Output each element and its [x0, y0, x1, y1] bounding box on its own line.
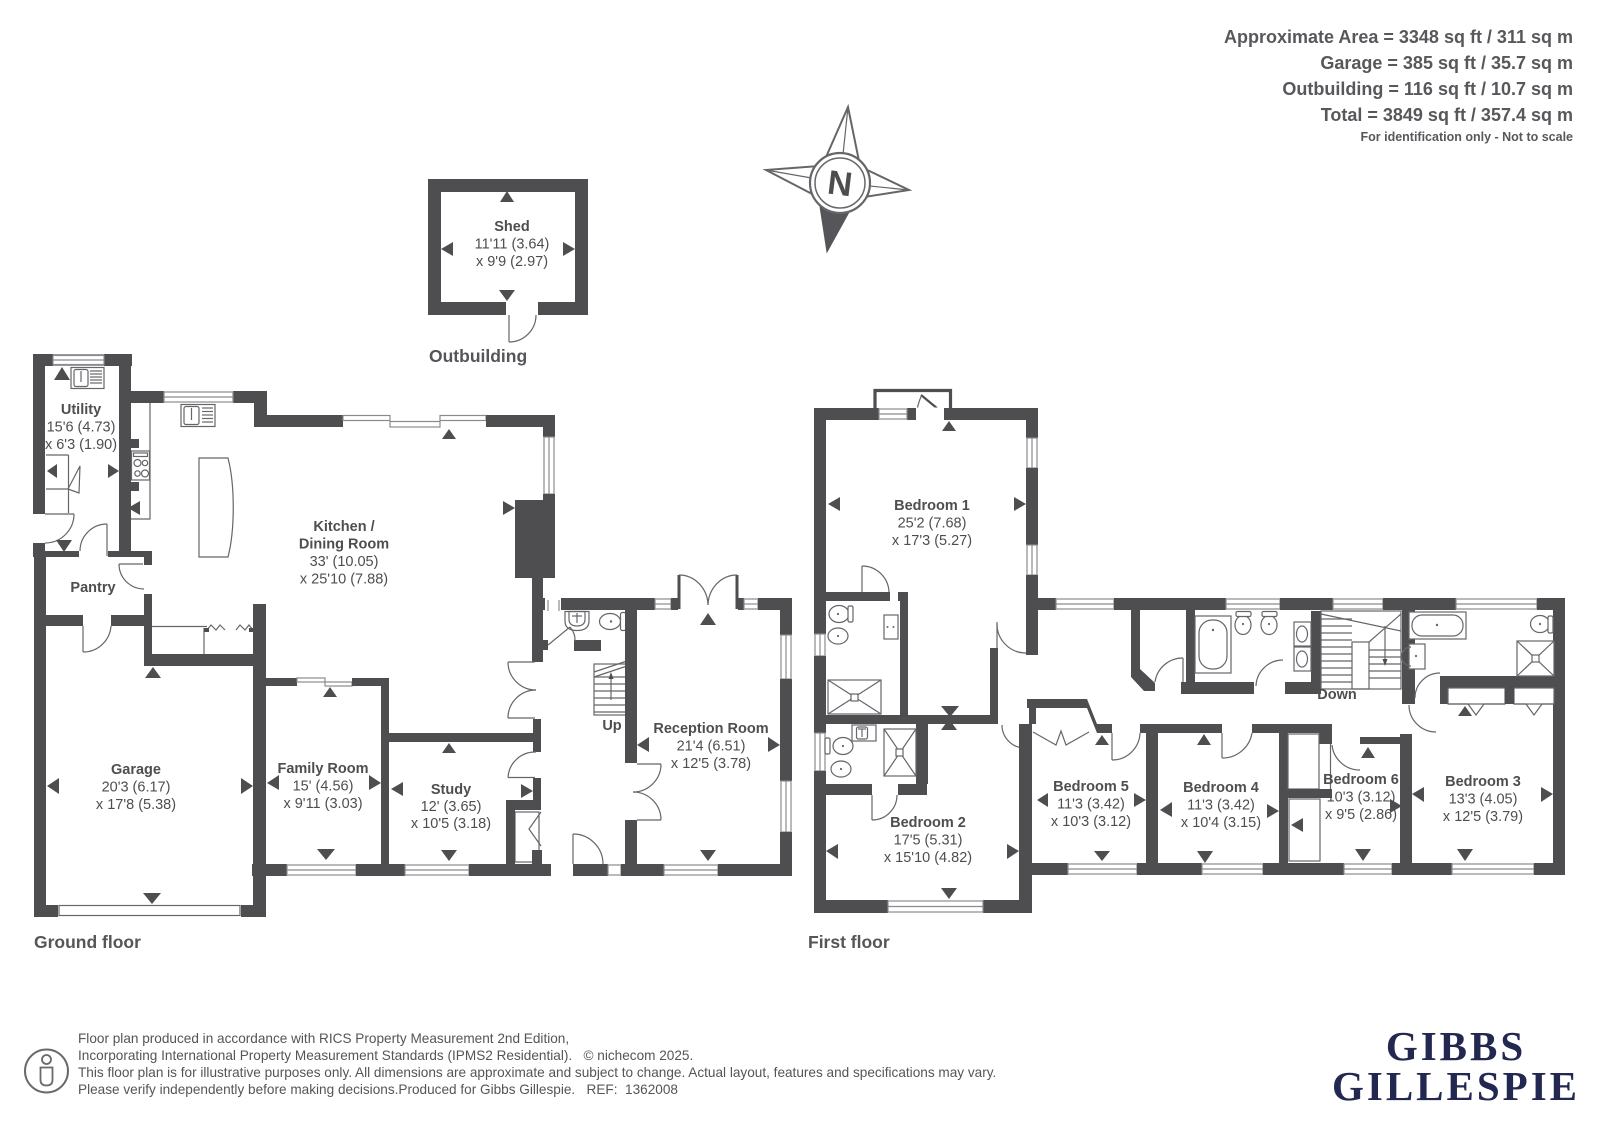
svg-text:x 15'10 (4.82): x 15'10 (4.82) — [884, 850, 972, 866]
svg-text:For identification only - Not: For identification only - Not to scale — [1360, 130, 1573, 144]
svg-text:GILLESPIE: GILLESPIE — [1332, 1063, 1580, 1109]
svg-text:Incorporating International Pr: Incorporating International Property Mea… — [78, 1048, 693, 1063]
svg-text:x 9'9 (2.97): x 9'9 (2.97) — [476, 254, 548, 270]
svg-text:x 10'3 (3.12): x 10'3 (3.12) — [1051, 814, 1131, 830]
svg-text:11'11 (3.64): 11'11 (3.64) — [475, 237, 550, 253]
svg-text:Outbuilding: Outbuilding — [429, 346, 527, 366]
svg-text:Shed: Shed — [494, 219, 529, 235]
svg-text:Approximate Area = 3348 sq ft: Approximate Area = 3348 sq ft / 311 sq m — [1224, 27, 1573, 47]
svg-text:Down: Down — [1317, 687, 1356, 703]
svg-text:Study: Study — [431, 782, 471, 798]
svg-text:Ground floor: Ground floor — [34, 932, 141, 952]
svg-text:21'4 (6.51): 21'4 (6.51) — [677, 739, 746, 755]
svg-text:Total = 3849 sq ft / 357.4 sq: Total = 3849 sq ft / 357.4 sq m — [1321, 105, 1573, 125]
svg-text:15'6 (4.73): 15'6 (4.73) — [47, 420, 116, 436]
svg-text:Garage: Garage — [111, 762, 161, 778]
svg-text:25'2 (7.68): 25'2 (7.68) — [898, 516, 967, 532]
svg-text:Kitchen /: Kitchen / — [313, 519, 374, 535]
svg-text:33' (10.05): 33' (10.05) — [310, 554, 379, 570]
svg-text:x 12'5 (3.78): x 12'5 (3.78) — [671, 756, 751, 772]
svg-text:11'3 (3.42): 11'3 (3.42) — [1187, 798, 1255, 814]
svg-text:Bedroom 5: Bedroom 5 — [1053, 779, 1129, 795]
svg-text:13'3 (4.05): 13'3 (4.05) — [1449, 792, 1518, 808]
svg-text:x 17'3 (5.27): x 17'3 (5.27) — [892, 533, 972, 549]
svg-text:10'3 (3.12): 10'3 (3.12) — [1327, 790, 1396, 806]
svg-text:x 10'4 (3.15): x 10'4 (3.15) — [1181, 815, 1261, 831]
svg-text:N: N — [825, 164, 854, 205]
svg-text:Bedroom 6: Bedroom 6 — [1323, 772, 1399, 788]
svg-text:Dining Room: Dining Room — [299, 537, 389, 553]
svg-text:15' (4.56): 15' (4.56) — [293, 779, 354, 795]
svg-text:x 12'5 (3.79): x 12'5 (3.79) — [1443, 809, 1523, 825]
svg-text:Floor plan produced in accorda: Floor plan produced in accordance with R… — [78, 1031, 569, 1046]
svg-text:x 25'10 (7.88): x 25'10 (7.88) — [300, 572, 388, 588]
svg-text:Bedroom 2: Bedroom 2 — [890, 815, 966, 831]
svg-text:Bedroom 3: Bedroom 3 — [1445, 774, 1521, 790]
svg-text:Pantry: Pantry — [70, 580, 115, 596]
svg-text:Outbuilding = 116 sq ft / 10.7: Outbuilding = 116 sq ft / 10.7 sq m — [1282, 79, 1573, 99]
svg-text:x 6'3 (1.90): x 6'3 (1.90) — [45, 437, 117, 453]
svg-text:x 9'5 (2.86): x 9'5 (2.86) — [1325, 807, 1397, 823]
svg-text:Garage = 385 sq ft / 35.7 sq m: Garage = 385 sq ft / 35.7 sq m — [1320, 53, 1573, 73]
svg-text:Family Room: Family Room — [277, 761, 368, 777]
svg-text:Reception Room: Reception Room — [653, 721, 768, 737]
svg-text:Bedroom 4: Bedroom 4 — [1183, 780, 1259, 796]
svg-text:Bedroom 1: Bedroom 1 — [894, 498, 970, 514]
svg-text:Please verify independently be: Please verify independently before makin… — [78, 1082, 678, 1097]
svg-text:17'5 (5.31): 17'5 (5.31) — [894, 833, 963, 849]
svg-text:x 10'5 (3.18): x 10'5 (3.18) — [411, 816, 491, 832]
svg-text:x 17'8 (5.38): x 17'8 (5.38) — [96, 797, 176, 813]
svg-text:11'3 (3.42): 11'3 (3.42) — [1057, 797, 1125, 813]
svg-text:12' (3.65): 12' (3.65) — [421, 799, 482, 815]
svg-text:20'3 (6.17): 20'3 (6.17) — [102, 780, 171, 796]
svg-text:First floor: First floor — [808, 932, 890, 952]
svg-text:Utility: Utility — [61, 402, 101, 418]
svg-text:This floor plan is for illustr: This floor plan is for illustrative purp… — [78, 1065, 996, 1080]
svg-text:Up: Up — [602, 718, 621, 734]
svg-text:x 9'11 (3.03): x 9'11 (3.03) — [283, 796, 362, 812]
